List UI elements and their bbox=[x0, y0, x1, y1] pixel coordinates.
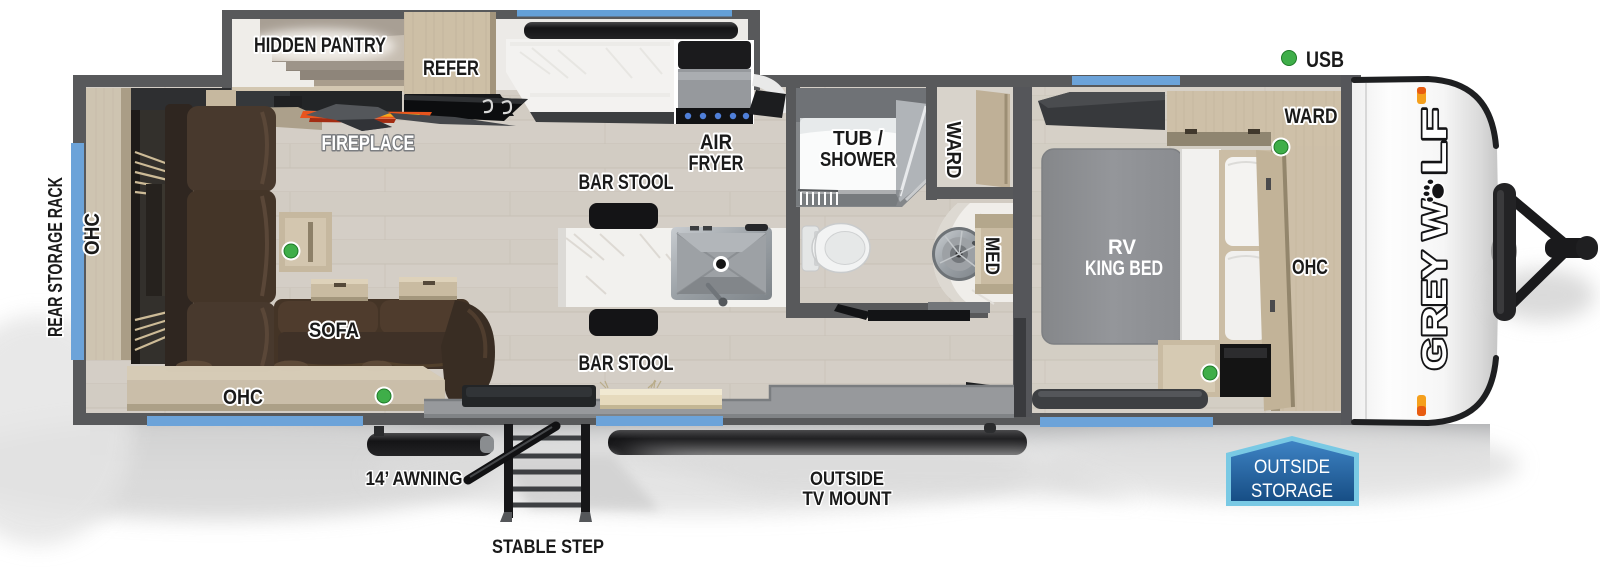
svg-text:USB: USB bbox=[1306, 47, 1344, 72]
svg-text:REFER: REFER bbox=[423, 57, 479, 80]
svg-text:FIREPLACE: FIREPLACE bbox=[322, 132, 415, 155]
svg-text:BAR STOOL: BAR STOOL bbox=[579, 171, 674, 194]
svg-text:SHOWER: SHOWER bbox=[820, 149, 896, 171]
svg-text:OHC: OHC bbox=[223, 386, 263, 409]
svg-text:OUTSIDE: OUTSIDE bbox=[810, 469, 884, 490]
svg-text:TUB /: TUB / bbox=[833, 128, 883, 150]
svg-text:WARD: WARD bbox=[1285, 105, 1338, 128]
svg-text:SOFA: SOFA bbox=[309, 319, 359, 342]
svg-text:FRYER: FRYER bbox=[689, 152, 744, 175]
svg-text:OUTSIDE: OUTSIDE bbox=[1254, 457, 1330, 478]
svg-text:GREY W: GREY W bbox=[1416, 199, 1454, 370]
svg-text:AIR: AIR bbox=[700, 131, 732, 154]
svg-text:OHC: OHC bbox=[81, 213, 104, 255]
svg-text:TV MOUNT: TV MOUNT bbox=[803, 489, 892, 510]
svg-text:BAR STOOL: BAR STOOL bbox=[579, 352, 674, 375]
svg-text:STABLE STEP: STABLE STEP bbox=[492, 537, 604, 558]
svg-text:STORAGE: STORAGE bbox=[1251, 481, 1333, 502]
svg-text:KING BED: KING BED bbox=[1085, 257, 1163, 280]
svg-text:14’ AWNING: 14’ AWNING bbox=[366, 469, 463, 490]
svg-text:REAR STORAGE RACK: REAR STORAGE RACK bbox=[45, 177, 67, 337]
svg-text:MED: MED bbox=[981, 237, 1002, 275]
svg-text:LF: LF bbox=[1416, 108, 1454, 175]
svg-text:WARD: WARD bbox=[942, 122, 964, 179]
svg-text:RV: RV bbox=[1108, 236, 1136, 259]
svg-text:HIDDEN PANTRY: HIDDEN PANTRY bbox=[254, 34, 386, 57]
svg-text:OHC: OHC bbox=[1292, 256, 1328, 279]
